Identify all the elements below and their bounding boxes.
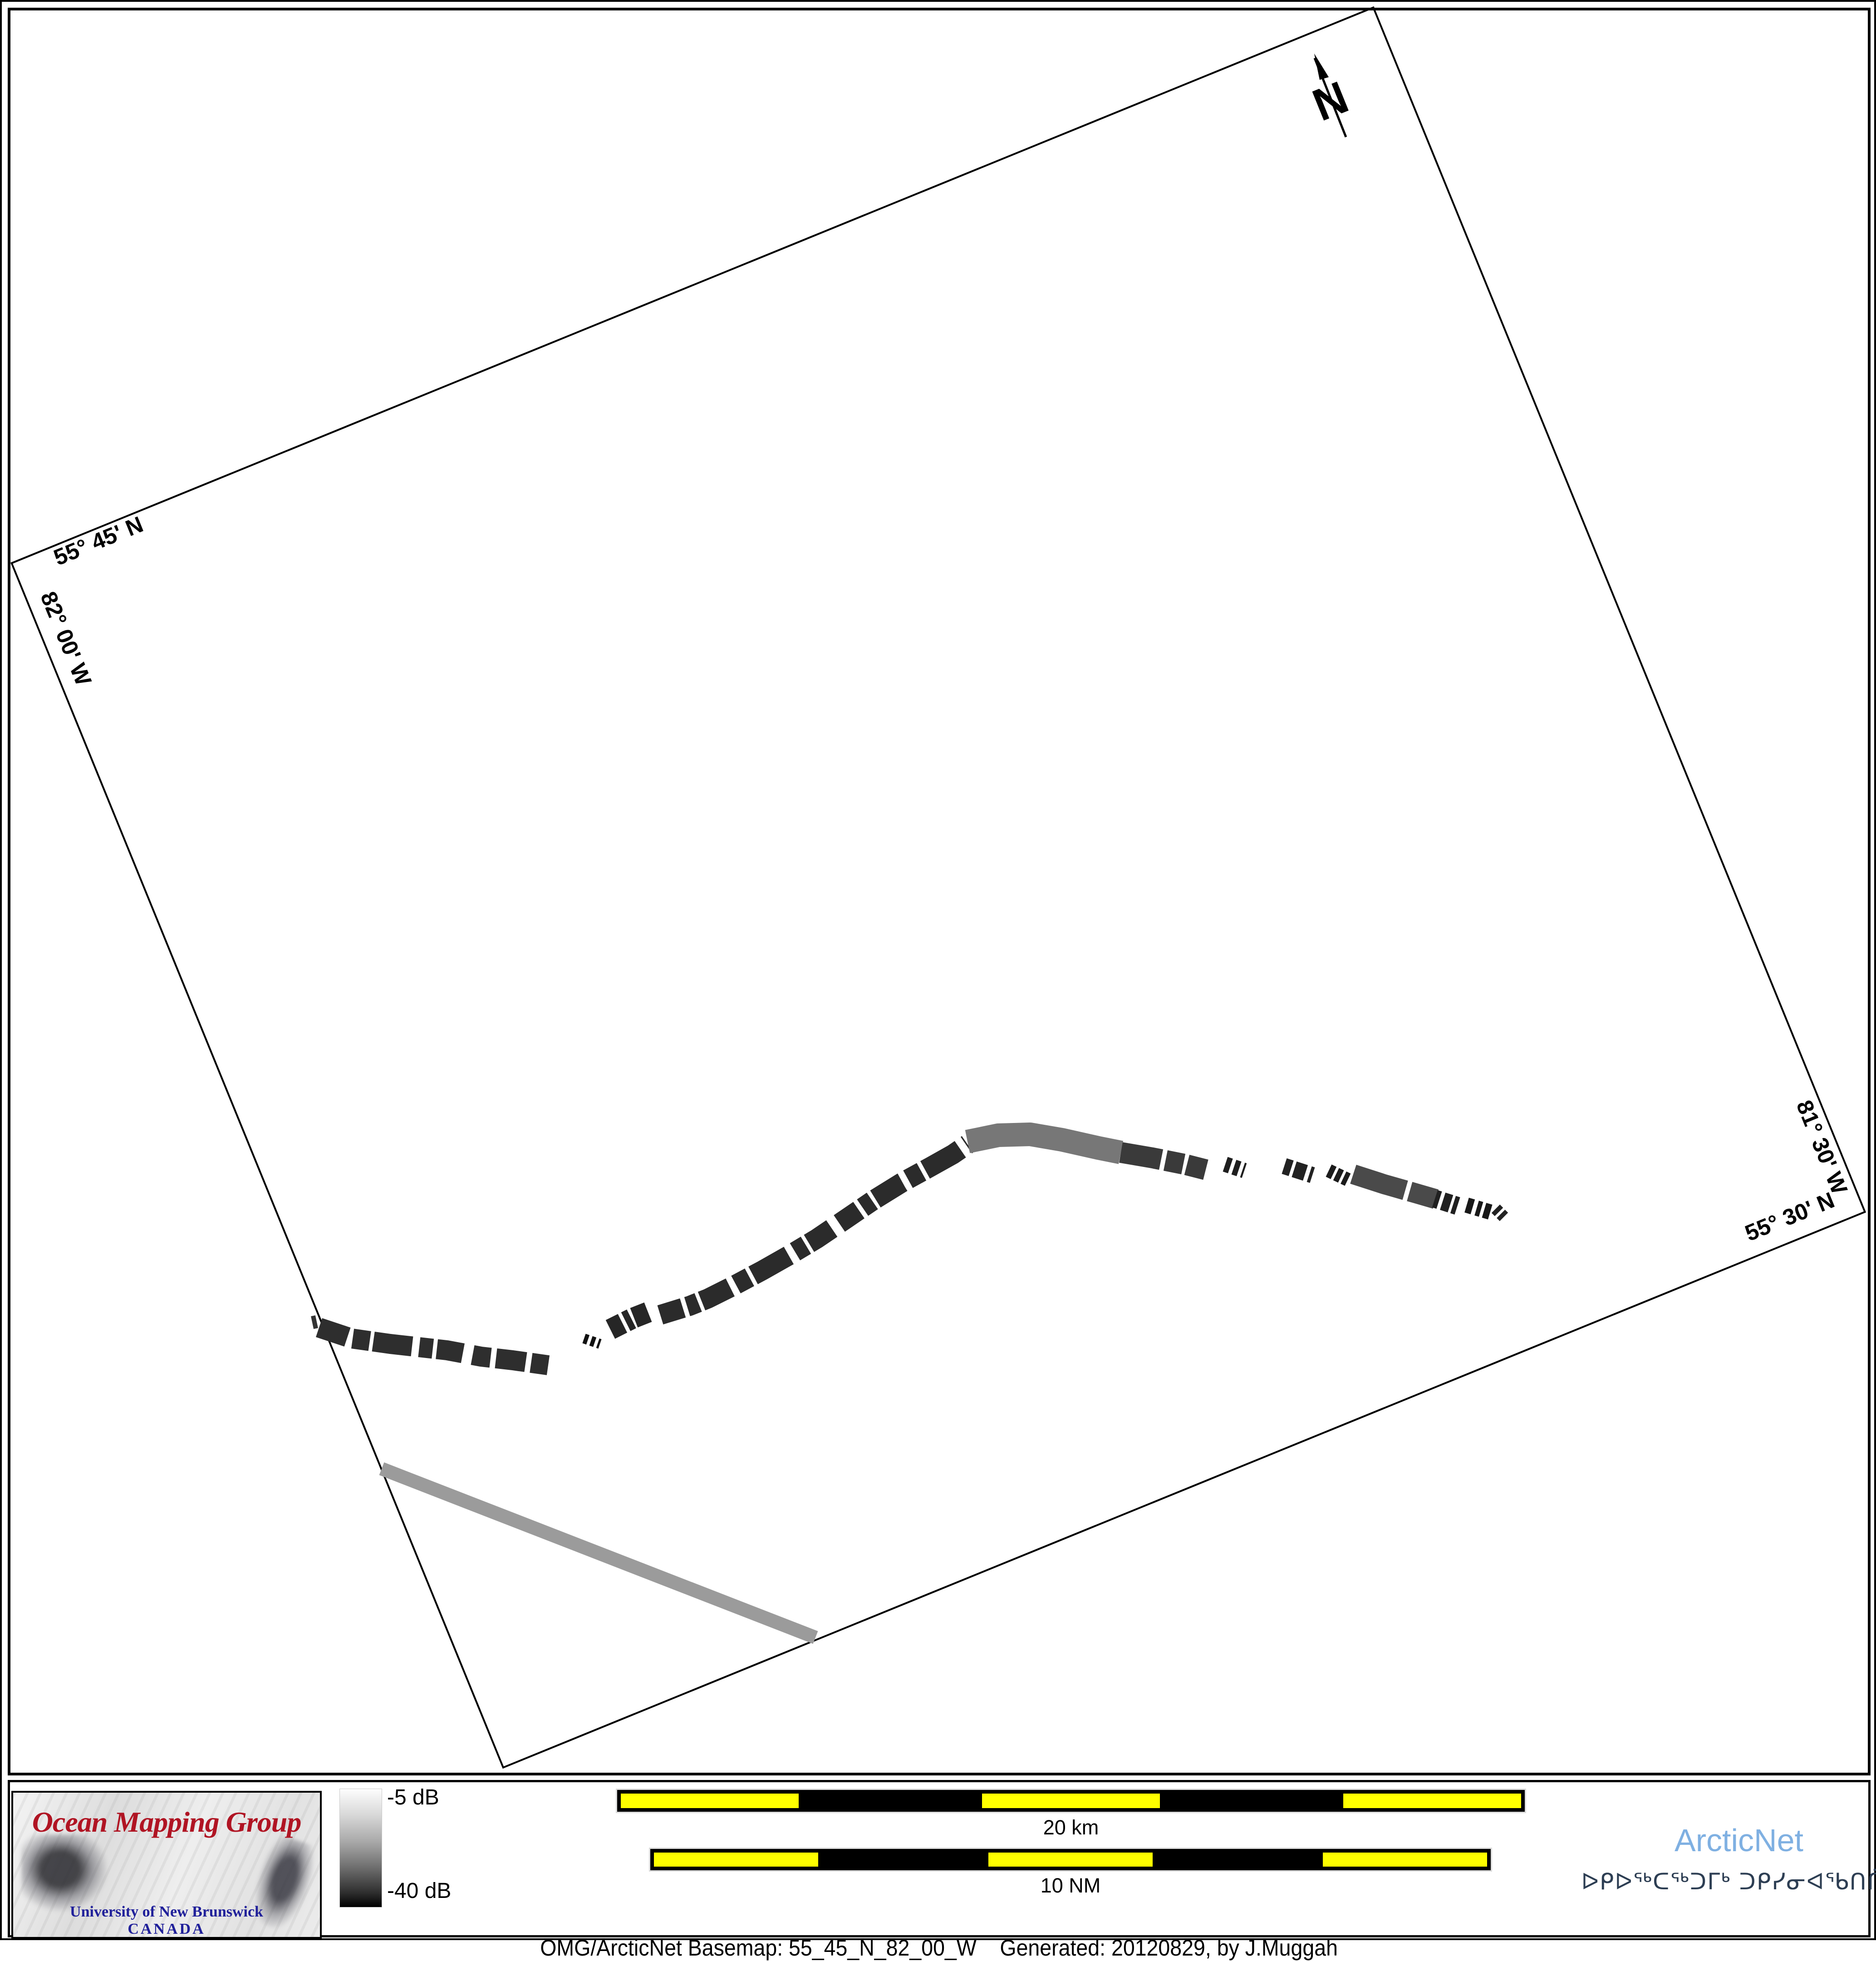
omg-university: University of New Brunswick <box>13 1903 320 1921</box>
scalebar-segment <box>1161 1792 1342 1809</box>
north-arrow: N <box>1293 41 1375 150</box>
scalebar-segment <box>1342 1792 1522 1809</box>
colorbar-min-label: -40 dB <box>387 1878 451 1903</box>
basemap-caption: OMG/ArcticNet Basemap: 55_45_N_82_00_W G… <box>497 1908 1368 1961</box>
scalebar-nm-label: 10 NM <box>1041 1874 1101 1897</box>
backscatter-colorbar <box>340 1789 382 1907</box>
scalebar-segment <box>1321 1851 1488 1868</box>
omg-logo: Ocean Mapping Group University of New Br… <box>11 1791 322 1939</box>
scalebar-nm <box>650 1849 1491 1870</box>
colorbar-max-label: -5 dB <box>387 1785 439 1810</box>
scalebar-segment <box>800 1792 981 1809</box>
scalebar-segment <box>653 1851 820 1868</box>
arcticnet-logo: ArcticNet <box>1675 1822 1803 1858</box>
omg-logo-image-left <box>21 1834 108 1912</box>
omg-country: CANADA <box>13 1921 320 1938</box>
scalebar-segment <box>619 1792 800 1809</box>
arcticnet-syllabics: ᐅᑭᐅᖅᑕᖅᑐᒥᒃ ᑐᑭᓯᓂᐊᖃᑎᒌᑦ <box>1581 1868 1876 1895</box>
scalebar-segment <box>1154 1851 1321 1868</box>
omg-title: Ocean Mapping Group <box>13 1805 320 1839</box>
scalebar-km-label: 20 km <box>1043 1816 1099 1839</box>
scalebar-segment <box>981 1792 1161 1809</box>
scalebar-km <box>617 1790 1525 1812</box>
scalebar-segment <box>987 1851 1154 1868</box>
scalebar-segment <box>820 1851 987 1868</box>
